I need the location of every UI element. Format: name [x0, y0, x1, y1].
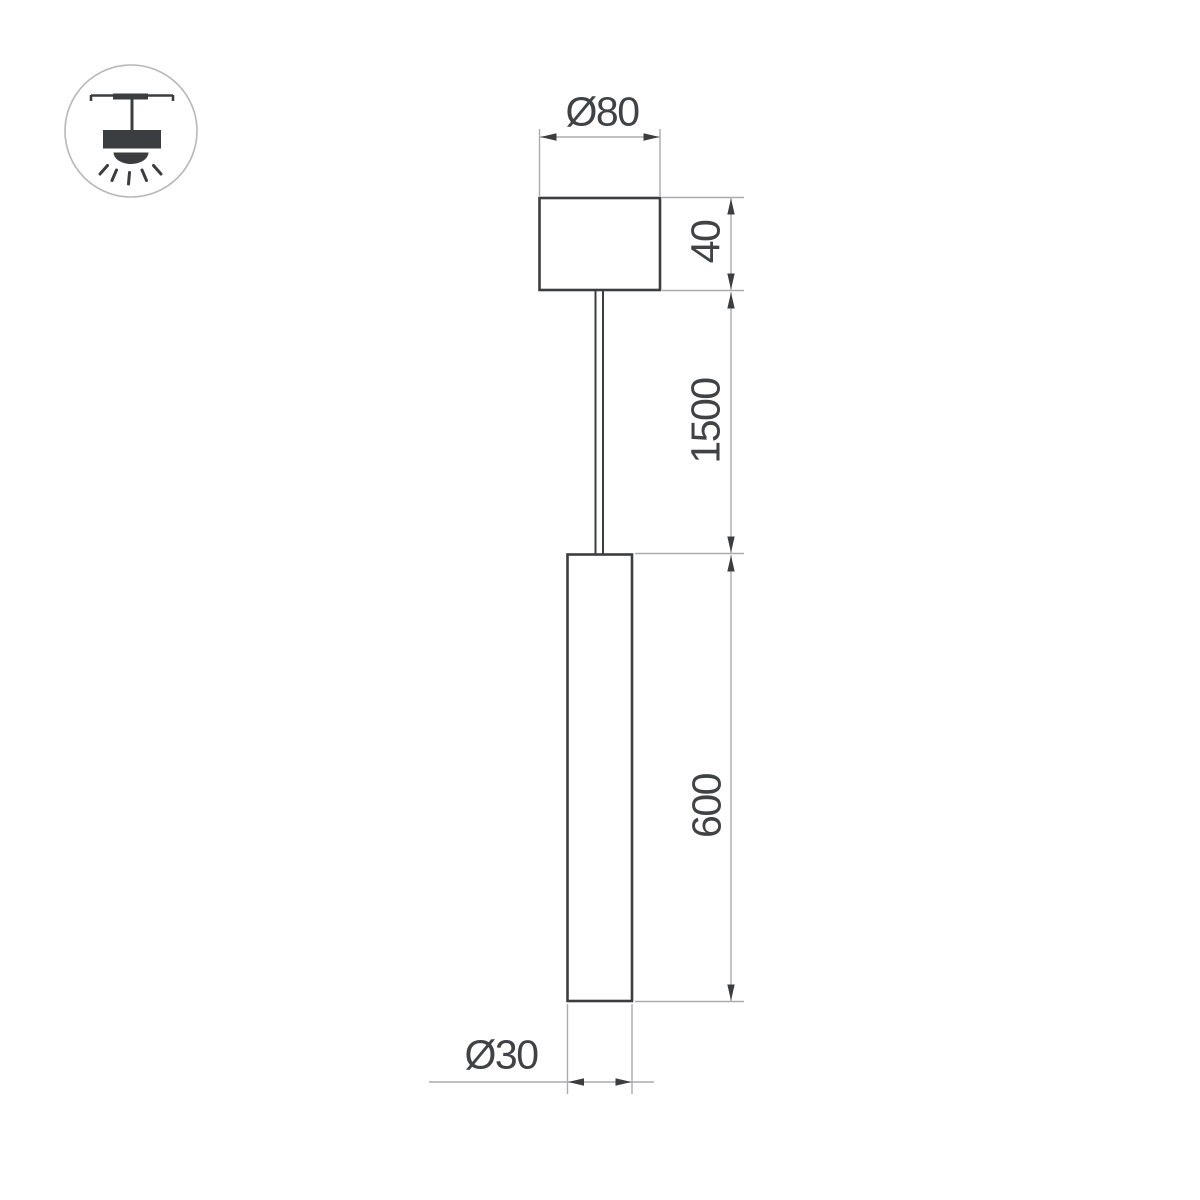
dimension-canopy-diameter [540, 129, 661, 196]
icon-light-rays [100, 166, 161, 185]
canopy-outline [540, 198, 661, 290]
dim-label-tube-diameter: Ø30 [465, 1035, 538, 1076]
dim-label-tube-length: 600 [687, 774, 728, 838]
suspension-wire [596, 291, 604, 554]
dim-label-canopy-height: 40 [686, 221, 727, 264]
icon-lamp-body [103, 130, 161, 149]
dimension-tube-diameter [429, 1004, 654, 1094]
dim-label-suspension-length: 1500 [686, 378, 727, 463]
technical-drawing-page: Ø80 40 1500 600 Ø30 [0, 0, 1200, 1200]
tube-body-outline [568, 555, 633, 1002]
dim-label-canopy-diameter: Ø80 [566, 92, 639, 133]
extension-lines-right [635, 198, 744, 1002]
icon-lamp-dome [114, 153, 149, 164]
drawing-canvas [0, 0, 1200, 1200]
track-pendant-mount-icon [65, 65, 197, 197]
